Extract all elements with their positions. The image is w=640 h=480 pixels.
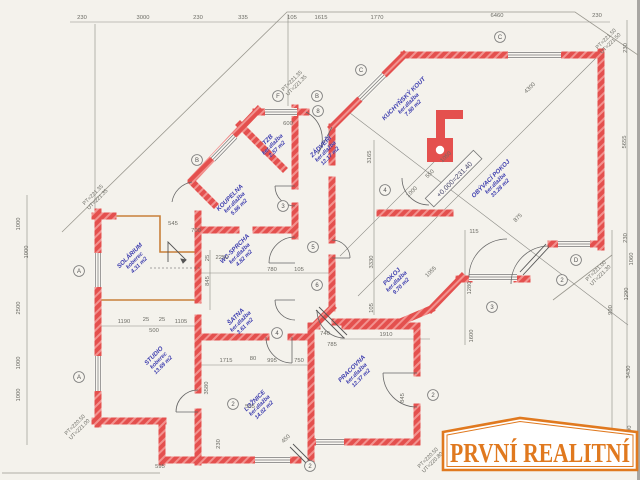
reference-marker: 5: [308, 242, 319, 253]
window: [94, 253, 102, 287]
window: [265, 108, 297, 116]
reference-marker: 2: [228, 399, 239, 410]
dimension-label: 230: [77, 15, 87, 21]
reference-marker: 8: [313, 106, 324, 117]
dimension-label: 750: [294, 358, 304, 364]
dimension-label: 25: [159, 317, 165, 323]
window: [255, 456, 290, 464]
reference-marker: 2: [428, 390, 439, 401]
dimension-label: 1000: [16, 218, 22, 231]
reference-marker: C: [495, 32, 506, 43]
dimension-label: 1000: [16, 389, 22, 402]
window: [469, 273, 517, 281]
dimension-label: 1190: [118, 319, 130, 325]
reference-marker: A: [74, 372, 85, 383]
marker-letter: C: [359, 68, 364, 74]
dimension-label: 740: [320, 331, 330, 337]
window: [94, 356, 102, 391]
dimension-label: 80: [250, 356, 256, 362]
dimension-label: 500: [149, 328, 159, 334]
dimension-label: 1060: [629, 253, 635, 266]
marker-letter: A: [77, 269, 81, 275]
dimension-label: 105: [287, 15, 297, 21]
window: [508, 51, 561, 59]
marker-letter: B: [195, 158, 199, 164]
reference-marker: F: [273, 91, 284, 102]
reference-marker: 3: [487, 302, 498, 313]
logo-text: PRVNÍ REALITNÍ: [450, 438, 630, 468]
dimension-label: 105: [294, 267, 304, 273]
dimension-label: 700: [191, 228, 201, 234]
dimension-label: 785: [327, 342, 337, 348]
dimension-label: 25: [143, 317, 149, 323]
reference-marker: 2: [305, 461, 316, 472]
dimension-label: 990: [608, 305, 614, 315]
dimension-label: 230: [592, 13, 602, 19]
marker-letter: D: [574, 258, 579, 264]
window: [558, 240, 590, 248]
dimension-label: 555: [245, 404, 255, 410]
dimension-label: 1290: [624, 288, 630, 301]
dimension-label: 3430: [626, 366, 632, 379]
dimension-label: 1105: [175, 319, 187, 325]
dimension-label: 335: [238, 15, 248, 21]
dimension-label: 995: [267, 358, 277, 364]
dimension-label: 595: [155, 464, 165, 470]
dimension-label: 1000: [24, 246, 30, 259]
dimension-label: 25: [205, 255, 211, 261]
dimension-label: 3580: [204, 382, 210, 395]
dimension-label: 1910: [380, 332, 393, 338]
dimension-label: 3330: [369, 256, 375, 269]
dimension-label: 5655: [622, 136, 628, 149]
dimension-label: 1000: [16, 357, 22, 370]
dimension-label: 3000: [137, 15, 150, 21]
dimension-label: 6460: [491, 13, 504, 19]
dimension-label: 780: [267, 267, 277, 273]
dimension-label: 230: [193, 15, 203, 21]
reference-marker: D: [571, 255, 582, 266]
marker-letter: A: [77, 375, 81, 381]
reference-marker: 3: [278, 201, 289, 212]
dimension-label: 230: [623, 43, 629, 53]
dimension-label: 1715: [220, 358, 233, 364]
reference-marker: 4: [380, 185, 391, 196]
dimension-label: 1600: [469, 330, 475, 343]
dimension-label: 2250: [216, 255, 229, 261]
reference-marker: B: [312, 91, 323, 102]
dimension-label: 230: [216, 439, 222, 449]
reference-marker: 2: [557, 275, 568, 286]
dimension-label: 230: [623, 233, 629, 243]
marker-letter: F: [276, 94, 280, 100]
window: [316, 438, 344, 446]
reference-marker: A: [74, 266, 85, 277]
dimension-label: 600: [283, 121, 293, 127]
marker-letter: C: [498, 35, 503, 41]
reference-marker: 6: [312, 280, 323, 291]
dimension-label: 845: [205, 276, 211, 286]
floor-plan-drawing: SOLÁRIUMkoberec4.31 m2STUDIOkoberec13.69…: [0, 0, 640, 480]
dimension-label: 1770: [371, 15, 384, 21]
floor-plan-scan: SOLÁRIUMkoberec4.31 m2STUDIOkoberec13.69…: [0, 0, 640, 480]
marker-letter: B: [315, 94, 319, 100]
dimension-label: 1615: [315, 15, 328, 21]
reference-marker: 4: [272, 328, 283, 339]
dimension-label: 105: [369, 303, 375, 313]
dimension-label: 115: [469, 229, 478, 235]
dimension-label: 2500: [16, 302, 22, 315]
dimension-label: 3165: [367, 151, 373, 164]
reference-marker: B: [192, 155, 203, 166]
dimension-label: 1280: [467, 282, 473, 295]
reference-marker: C: [356, 65, 367, 76]
dimension-label: 545: [168, 221, 178, 227]
dimension-label: 845: [400, 393, 406, 403]
